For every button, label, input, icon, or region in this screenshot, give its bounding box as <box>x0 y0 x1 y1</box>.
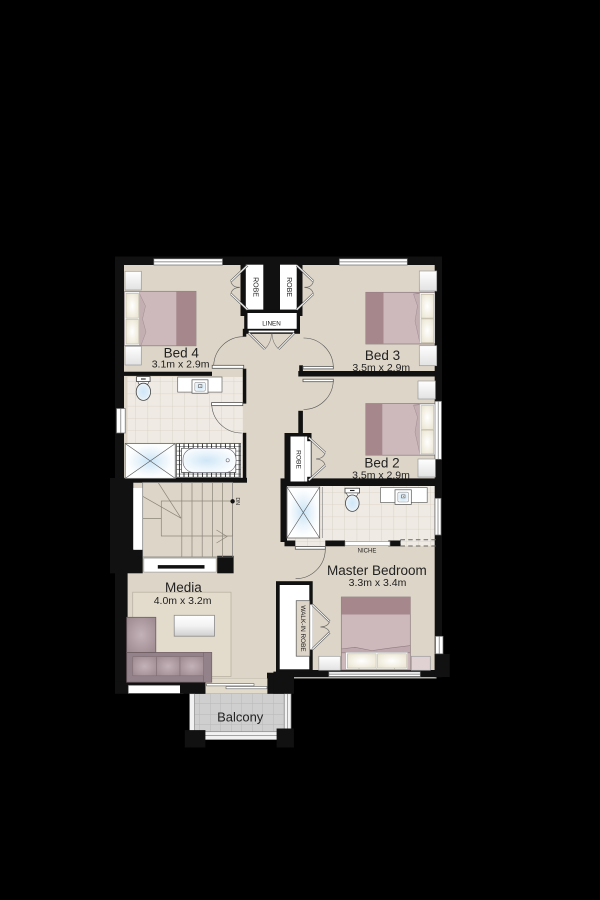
svg-text:ROBE: ROBE <box>285 277 292 297</box>
svg-text:4.0m x 3.2m: 4.0m x 3.2m <box>154 595 212 607</box>
svg-text:NICHE: NICHE <box>358 548 377 554</box>
svg-text:WALK-IN ROBE: WALK-IN ROBE <box>299 605 306 651</box>
svg-text:DN: DN <box>234 498 240 506</box>
svg-text:Media: Media <box>165 580 202 595</box>
svg-text:Bed 3: Bed 3 <box>365 348 400 363</box>
svg-text:ROBE: ROBE <box>295 450 302 469</box>
svg-text:3.3m x 3.4m: 3.3m x 3.4m <box>349 577 407 589</box>
svg-text:Balcony: Balcony <box>217 709 264 724</box>
svg-text:3.5m x 2.9m: 3.5m x 2.9m <box>352 469 410 481</box>
svg-text:3.5m x 2.9m: 3.5m x 2.9m <box>352 362 410 374</box>
svg-text:3.1m x 2.9m: 3.1m x 2.9m <box>152 358 210 370</box>
svg-text:LINEN: LINEN <box>262 320 281 327</box>
svg-text:Master Bedroom: Master Bedroom <box>327 563 427 578</box>
svg-text:ROBE: ROBE <box>252 277 259 297</box>
